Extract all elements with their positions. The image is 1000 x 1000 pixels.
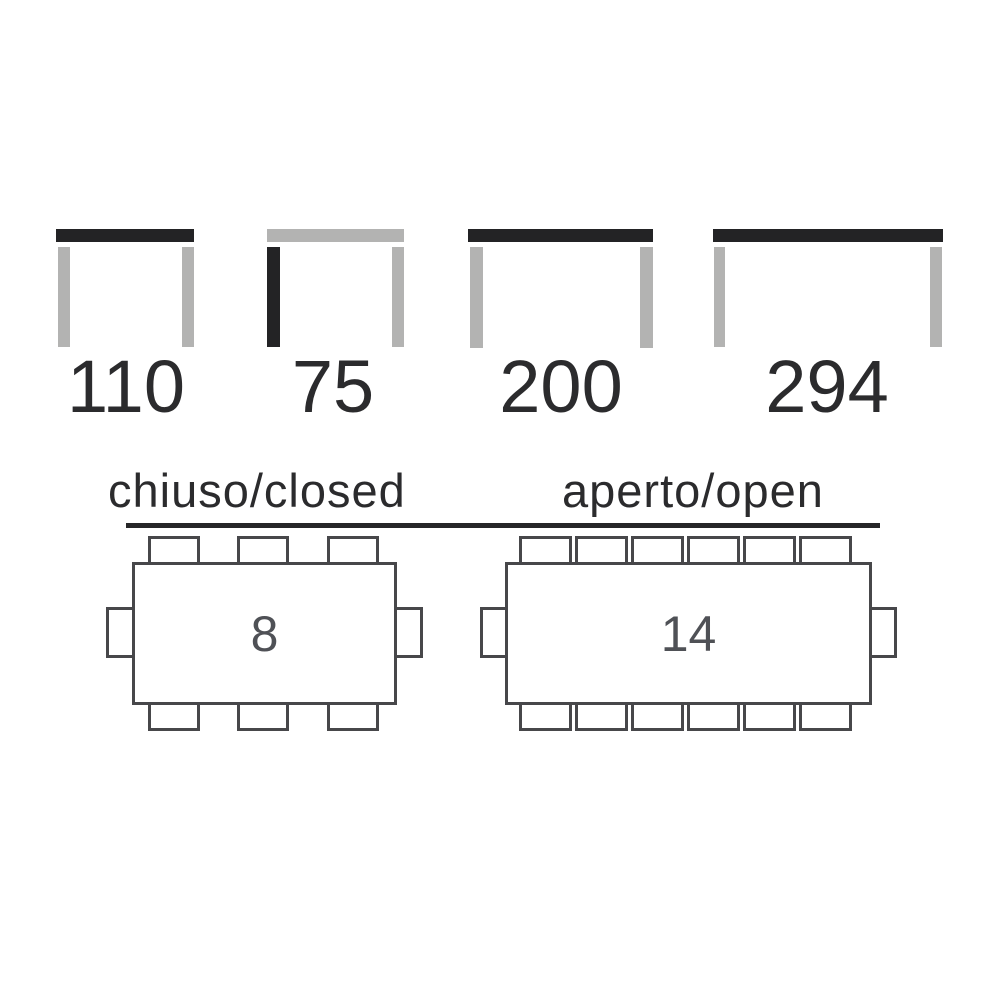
table-leg-right (182, 247, 194, 347)
dimension-value: 294 (717, 350, 937, 424)
section-label-open: aperto/open (562, 467, 824, 514)
tabletop-closed: 8 (132, 562, 397, 705)
seat-count-open: 14 (661, 609, 717, 659)
table-leg-left (470, 247, 483, 348)
table-leg-left (714, 247, 725, 347)
table-leg-right (930, 247, 942, 347)
table-leg-left-highlighted (267, 247, 280, 347)
section-label-closed: chiuso/closed (108, 467, 406, 514)
tabletop-bar-highlighted (713, 229, 943, 242)
dimensions-diagram: 110 75 200 294 chiuso/closed aperto/open (0, 0, 1000, 1000)
tabletop-bar-highlighted (468, 229, 653, 242)
tabletop-open: 14 (505, 562, 872, 705)
seat-count-closed: 8 (251, 609, 279, 659)
dimension-value: 75 (223, 350, 443, 424)
dimension-value: 110 (16, 350, 236, 424)
table-leg-right (640, 247, 653, 348)
table-leg-left (58, 247, 70, 347)
dimension-value: 200 (451, 350, 671, 424)
table-leg-right (392, 247, 404, 347)
tabletop-bar-highlighted (56, 229, 194, 242)
section-underline (126, 523, 880, 528)
tabletop-bar (267, 229, 404, 242)
